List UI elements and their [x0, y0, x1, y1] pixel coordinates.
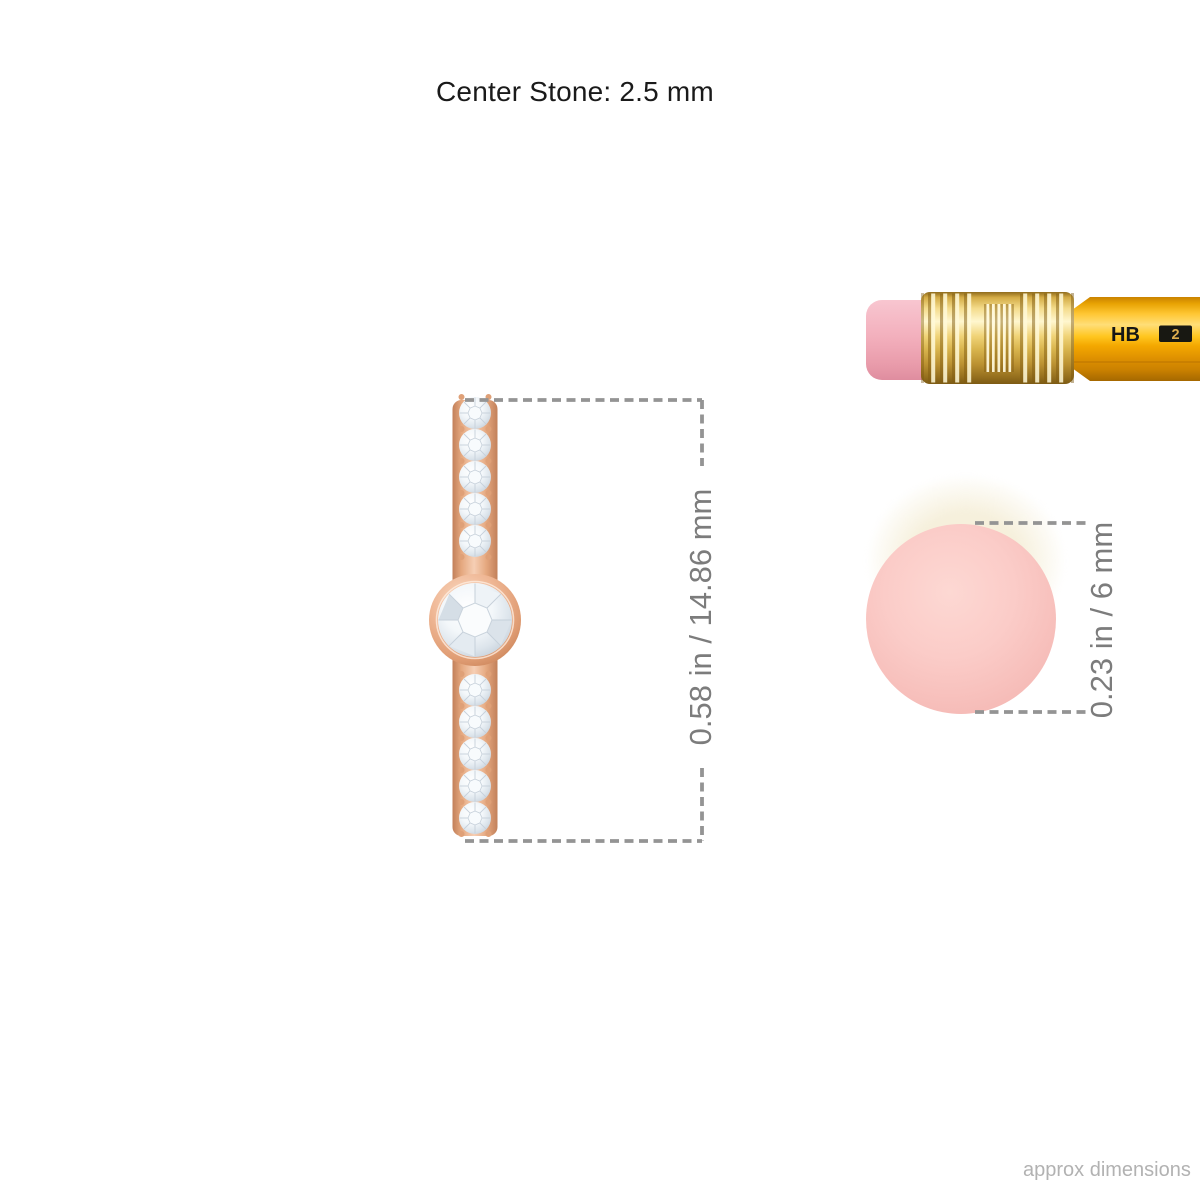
- approx-dimensions-note: approx dimensions: [1023, 1159, 1191, 1182]
- dimension-lines: [0, 0, 1200, 1200]
- earring-dimension-bracket: [465, 400, 702, 841]
- eraser-dimension-lines: [975, 523, 1087, 712]
- eraser-diameter-label: 0.23 in / 6 mm: [1085, 515, 1119, 725]
- earring-height-label: 0.58 in / 14.86 mm: [684, 482, 718, 752]
